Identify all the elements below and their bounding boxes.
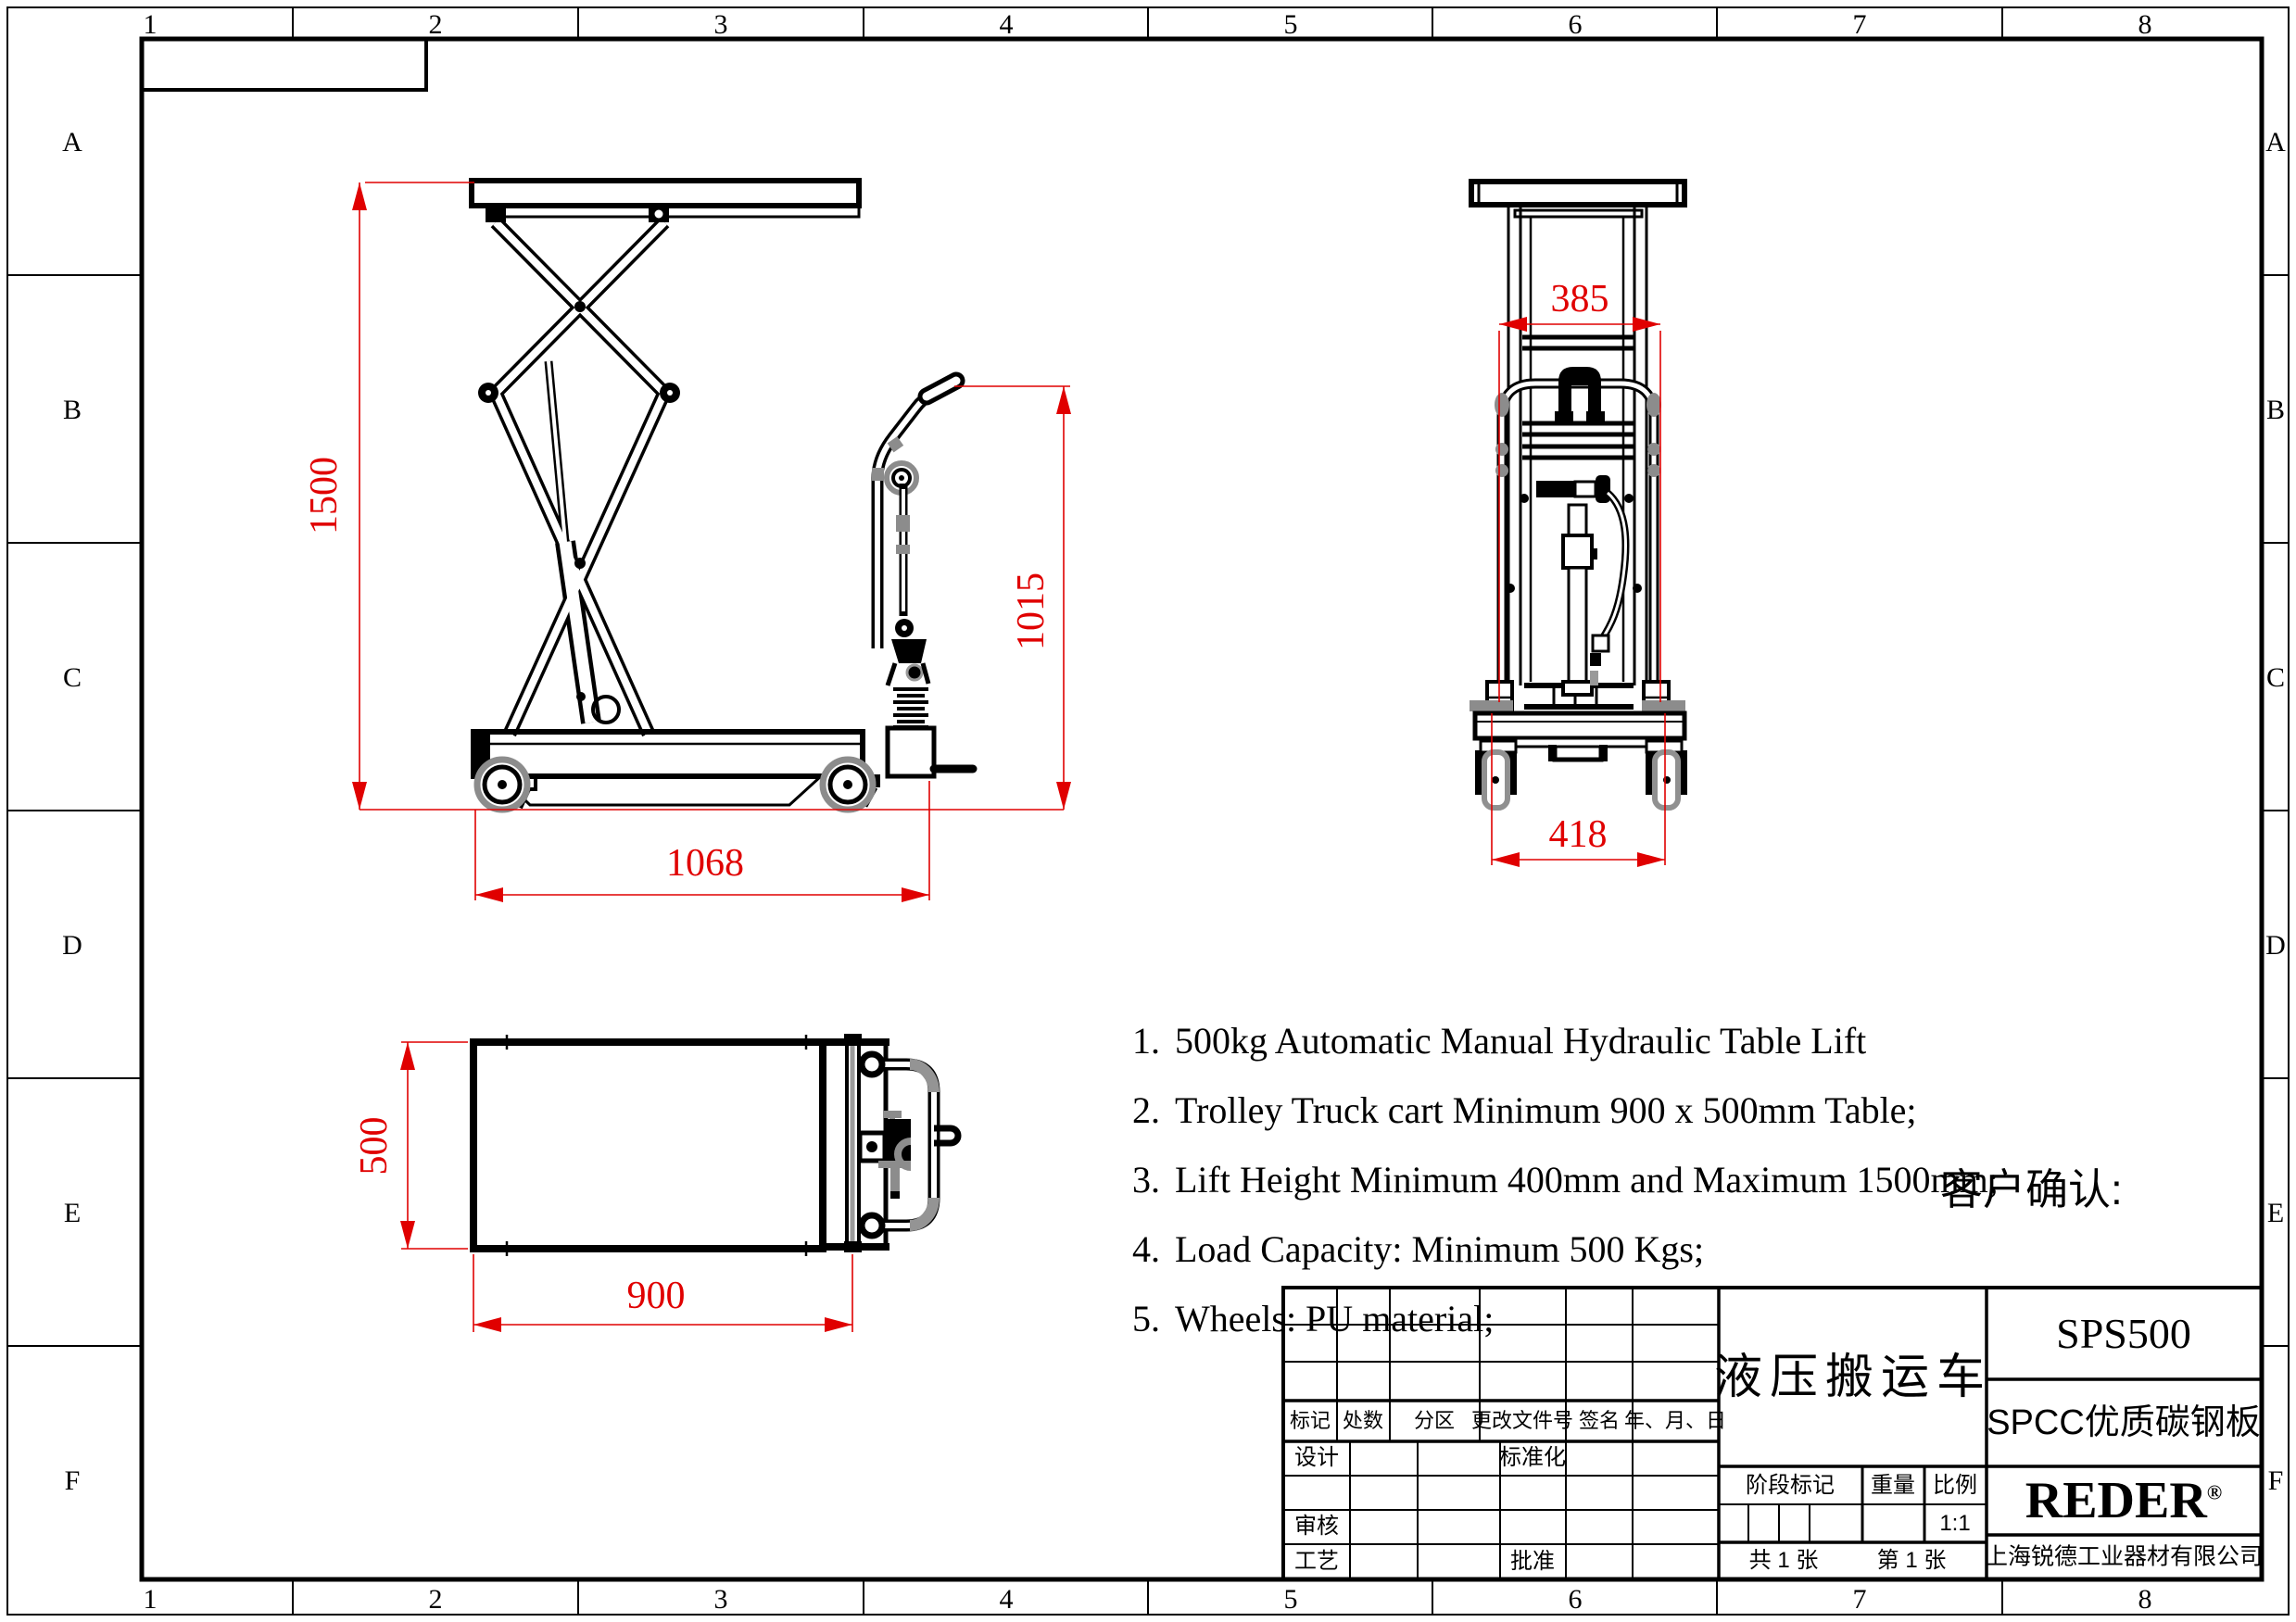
customer-confirm-label: 客户确认: xyxy=(1940,1156,2123,1217)
base-frame xyxy=(473,732,863,805)
note-item: 1.500kg Automatic Manual Hydraulic Table… xyxy=(1112,1006,1999,1075)
dim-418: 418 xyxy=(1549,813,1608,856)
dim-1015: 1015 xyxy=(1010,572,1053,650)
tb-stage-mark-label: 阶段标记 xyxy=(1746,1475,1835,1497)
note-text: Load Capacity: Minimum 500 Kgs; xyxy=(1175,1228,1704,1270)
front-platform xyxy=(1471,182,1684,205)
tb-review-label: 审核 xyxy=(1294,1515,1339,1538)
front-view: 385 418 xyxy=(1470,182,1687,867)
rear-caster xyxy=(823,760,880,810)
note-item: 4.Load Capacity: Minimum 500 Kgs; xyxy=(1112,1214,1999,1284)
tb-mark-label: 标记 xyxy=(1290,1411,1331,1431)
tb-date-label: 年、月、日 xyxy=(1624,1411,1726,1431)
registered-mark: ® xyxy=(2207,1480,2222,1503)
tb-signature-label: 签名 xyxy=(1579,1411,1620,1431)
front-wheels xyxy=(1475,741,1687,808)
brand-text: REDER xyxy=(2025,1472,2207,1529)
note-number: 4. xyxy=(1112,1214,1160,1284)
product-name: 液压搬运车 xyxy=(1714,1353,1992,1402)
dim-385: 385 xyxy=(1551,278,1609,321)
note-text: Lift Height Minimum 400mm and Maximum 15… xyxy=(1175,1159,1999,1201)
tb-weight-label: 重量 xyxy=(1871,1475,1915,1497)
note-number: 2. xyxy=(1112,1075,1160,1145)
side-dimensions xyxy=(360,182,1070,900)
note-item: 3.Lift Height Minimum 400mm and Maximum … xyxy=(1112,1145,1999,1214)
front-handle-bar xyxy=(1536,475,1610,503)
dim-500: 500 xyxy=(353,1117,396,1176)
tb-approve-label: 批准 xyxy=(1510,1551,1555,1573)
note-number: 1. xyxy=(1112,1006,1160,1075)
pump-handle-assembly xyxy=(872,381,973,776)
carriage-clamp xyxy=(1558,367,1601,419)
tb-zone-label: 分区 xyxy=(1414,1411,1455,1431)
brand-logo: REDER® xyxy=(2025,1475,2222,1527)
tb-process-label: 工艺 xyxy=(1294,1551,1339,1573)
drawing-sheet: 1 2 3 4 5 6 7 8 1 2 3 4 5 6 7 8 A B C D … xyxy=(0,0,2296,1622)
tb-sheet-total: 共 1 张 xyxy=(1749,1550,1819,1572)
model-number: SPS500 xyxy=(2056,1313,2191,1355)
note-item: 2.Trolley Truck cart Minimum 900 x 500mm… xyxy=(1112,1075,1999,1145)
company-name: 上海锐德工业器材有限公司 xyxy=(1985,1546,2263,1569)
pump-spring xyxy=(893,687,928,729)
note-number: 5. xyxy=(1112,1284,1160,1353)
platform xyxy=(472,181,859,206)
table-outline xyxy=(473,1042,823,1249)
tb-change-doc-label: 更改文件号 xyxy=(1471,1411,1573,1431)
note-text: 500kg Automatic Manual Hydraulic Table L… xyxy=(1175,1020,1866,1062)
dim-1068: 1068 xyxy=(666,842,744,885)
note-number: 3. xyxy=(1112,1145,1160,1214)
side-view: 1500 1015 1068 xyxy=(303,181,1071,902)
notes-list: 1.500kg Automatic Manual Hydraulic Table… xyxy=(1112,1006,1999,1353)
tb-scale-value: 1:1 xyxy=(1939,1513,1970,1535)
dim-900: 900 xyxy=(627,1275,686,1317)
note-item: 5.Wheels: PU material; xyxy=(1112,1284,1999,1353)
note-text: Trolley Truck cart Minimum 900 x 500mm T… xyxy=(1175,1089,1917,1131)
tb-sheet-no: 第 1 张 xyxy=(1877,1550,1947,1572)
front-cylinder xyxy=(1563,505,1592,695)
tb-scale-label: 比例 xyxy=(1933,1475,1977,1497)
material-spec: SPCC优质碳钢板 xyxy=(1987,1405,2261,1440)
top-view: 500 900 xyxy=(353,1034,958,1332)
tb-count-label: 处数 xyxy=(1343,1411,1383,1431)
tb-design-label: 设计 xyxy=(1294,1447,1339,1469)
side-dim-arrows xyxy=(352,182,1071,902)
note-text: Wheels: PU material; xyxy=(1175,1298,1494,1339)
tb-standardization-label: 标准化 xyxy=(1499,1447,1566,1469)
dim-1500: 1500 xyxy=(303,457,346,534)
mast-crossbars xyxy=(1522,337,1634,458)
